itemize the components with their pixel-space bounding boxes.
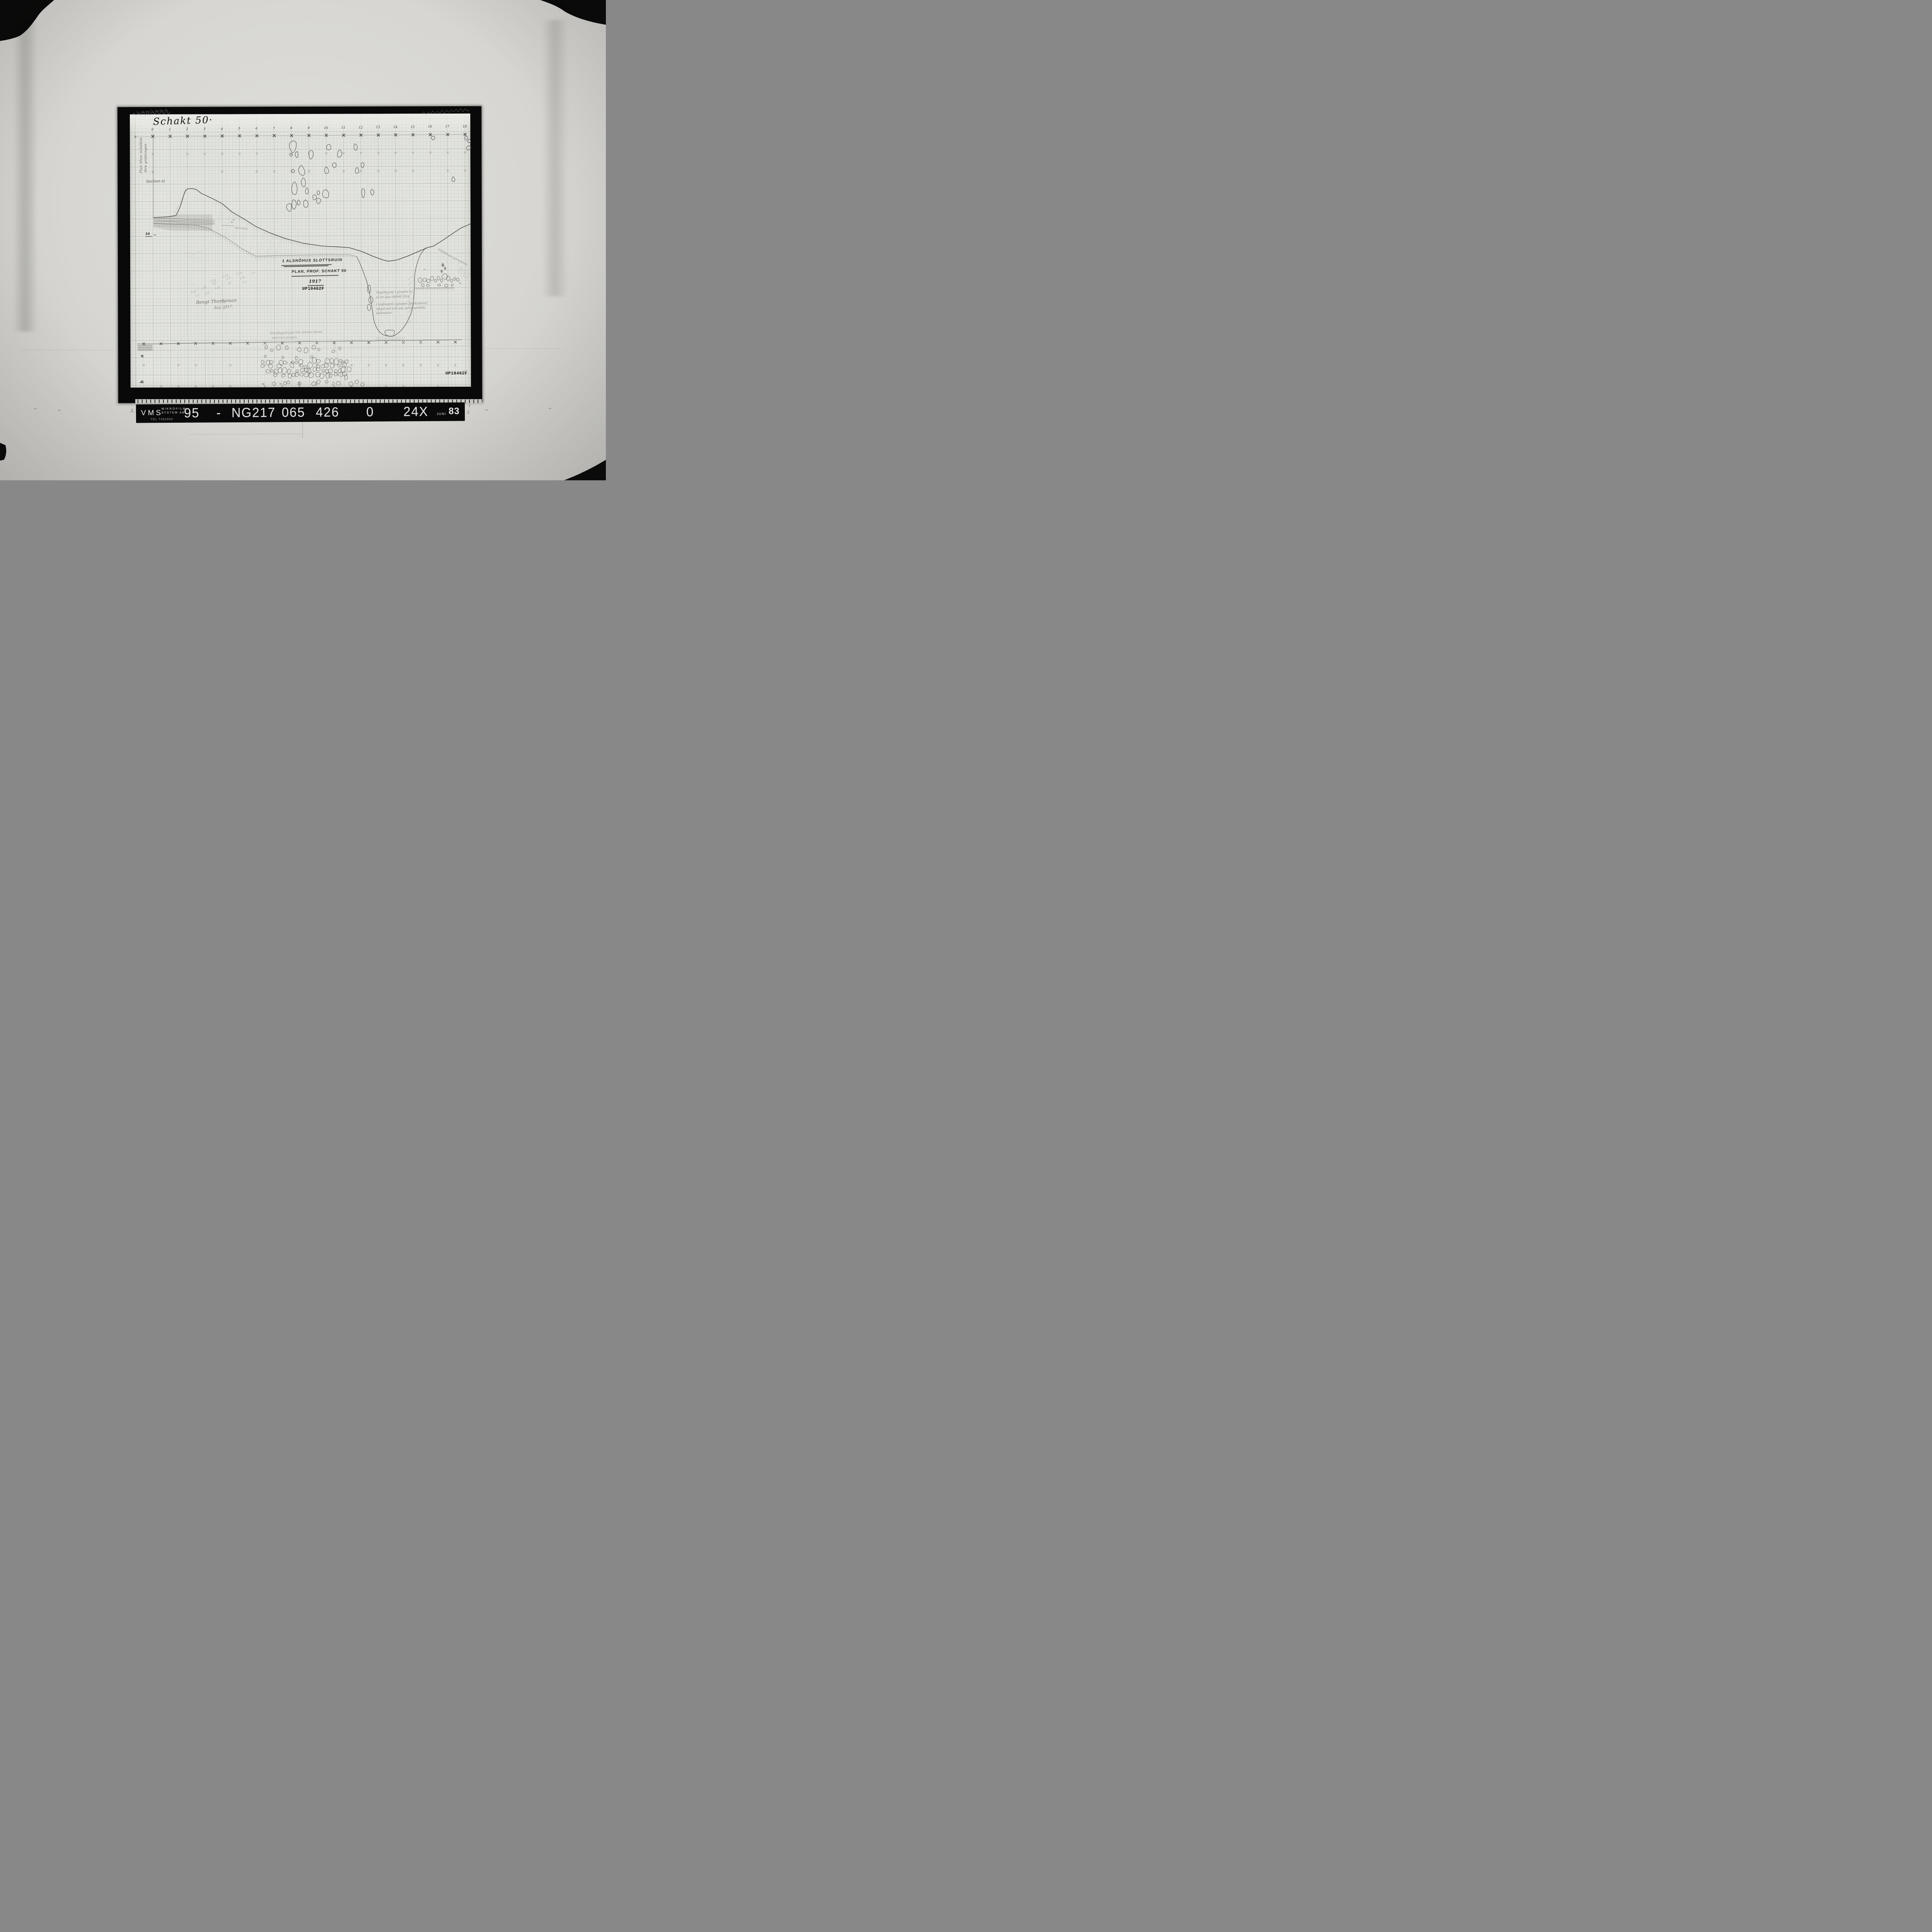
left-edge-shadow xyxy=(13,22,37,332)
plan-side-label-line2: före gräfningen xyxy=(144,143,148,172)
caption-underline-2 xyxy=(291,275,338,277)
caption-plan-line: PLAN, PROF. SCHAKT 50 xyxy=(292,269,347,274)
footer-brand-sub1: MIKROFILM xyxy=(162,407,186,410)
measurement-number: 2.16 xyxy=(190,290,197,294)
footer-phone: TEL 7392850 xyxy=(151,418,173,421)
scale-number: 4 xyxy=(221,127,223,131)
scale-number: 16 xyxy=(428,125,432,129)
scale-number: 12 xyxy=(359,126,363,129)
registration-dash-2 xyxy=(58,410,61,411)
archive-stamp-center: UP10462F xyxy=(302,287,324,291)
scale-number: 17 xyxy=(445,125,449,129)
measurement-number: 1.2 xyxy=(242,280,247,284)
right-edge-shadow xyxy=(543,20,568,296)
measurement-number: 93 xyxy=(228,281,231,285)
measurement-number: 2.16 xyxy=(236,271,242,276)
edge-pencil-right-top: 1 xyxy=(469,404,471,408)
reel-dash: - xyxy=(216,405,221,420)
scale-number: 10 xyxy=(324,126,328,130)
band-letter-a: a xyxy=(139,355,145,357)
scale-number: 2 xyxy=(186,128,188,131)
plan-side-label-line1: Plan öfver schaktet xyxy=(139,137,143,173)
paper-crease-right xyxy=(483,348,560,349)
registration-dash-3 xyxy=(485,410,488,410)
frame-code: 065 426 xyxy=(282,405,340,420)
note-right-line3: I myllagret i gropen förekommer xyxy=(376,301,427,306)
scale-number: 18 xyxy=(463,125,467,129)
level-marker: 10 xyxy=(145,232,150,236)
edge-pencil-right-bottom: 2 xyxy=(467,411,469,415)
caption-site-line: 1 ALSNÖHUS SLOTTSRUIN xyxy=(282,258,342,263)
scale-number: 8 xyxy=(290,126,292,130)
measurement-number: 2.16 xyxy=(201,286,207,291)
caption-underline-3 xyxy=(308,285,324,286)
signature-name: Bengt Thordeman xyxy=(196,298,237,305)
magnification: 24X xyxy=(403,404,429,419)
scale-number: 1 xyxy=(169,128,171,132)
scale-number: 13 xyxy=(376,126,380,129)
footer-brand-sub2: SYSTEM AB xyxy=(162,411,185,414)
band-scale-number: 11 xyxy=(314,382,318,386)
section-label: Section a) xyxy=(146,179,165,184)
vms-logo: VMS xyxy=(141,409,163,417)
scale-number: 6 xyxy=(255,127,257,131)
edge-pencil-left: 2, xyxy=(131,409,134,413)
scale-number: 3 xyxy=(204,128,206,131)
reel-number: NG217 xyxy=(231,405,276,420)
footer-month: JUNI xyxy=(437,412,446,416)
reel-prefix: 95 xyxy=(184,405,200,421)
measurement-number: 1.42 xyxy=(214,286,221,290)
microfilm-scan-photo: Schakt 50· Plan öfver schaktet före gräf… xyxy=(0,0,606,480)
scale-number: 7 xyxy=(273,127,275,131)
find-label-spjutspets: Spjutspets xyxy=(235,226,248,230)
microfilm-footer-bar: VMS MIKROFILM SYSTEM AB TEL 7392850 95 -… xyxy=(136,402,465,423)
measurement-number: 63 xyxy=(213,281,217,286)
measurement-number: 1.6 xyxy=(251,271,255,275)
scale-number: 0 xyxy=(151,128,153,132)
note-right-line5: kolsmulor. xyxy=(376,311,392,315)
measurement-number: 1.75 xyxy=(219,301,226,305)
scale-number: 9 xyxy=(308,126,310,130)
band-scale-number: 8 xyxy=(261,383,265,385)
scale-number: 5 xyxy=(238,127,240,131)
note-right-line4: något kol och sot, samt spridda xyxy=(376,306,425,311)
measurement-number: 1.54 xyxy=(239,276,245,281)
band-scale-number: 12 xyxy=(331,382,335,386)
caption-year: 1917 xyxy=(309,279,321,284)
bottom-note-line2: ned mot gropen. xyxy=(272,335,298,340)
graph-paper-sheet: Schakt 50· Plan öfver schaktet före gräf… xyxy=(130,114,471,388)
measurement-number: 1.07 xyxy=(204,291,210,296)
scale-number: 14 xyxy=(393,125,398,129)
paper-crease-left xyxy=(21,350,116,350)
registration-dash-4 xyxy=(549,408,551,409)
note-right-line2: af en ljus rödlett färg. xyxy=(376,294,410,299)
band-scale-number: 10 xyxy=(297,382,301,386)
registration-dash-1 xyxy=(34,408,37,409)
measurement-number: 1.5 xyxy=(195,293,199,298)
band-scale-number: 9 xyxy=(279,383,282,385)
footer-flag: 0 xyxy=(366,404,374,420)
note-right-line1: Tegellagret i gropen är xyxy=(376,290,412,294)
film-frame: Schakt 50· Plan öfver schaktet före gräf… xyxy=(117,106,482,403)
footer-year: 83 xyxy=(449,406,460,417)
scale-number: 11 xyxy=(341,126,345,130)
band-letter-b: b xyxy=(139,380,145,383)
scale-number: 15 xyxy=(411,125,415,129)
bottom-note-line1: Stenläggningen här sluttar jämnt xyxy=(270,330,322,335)
sheet-title: Schakt 50· xyxy=(153,114,213,127)
